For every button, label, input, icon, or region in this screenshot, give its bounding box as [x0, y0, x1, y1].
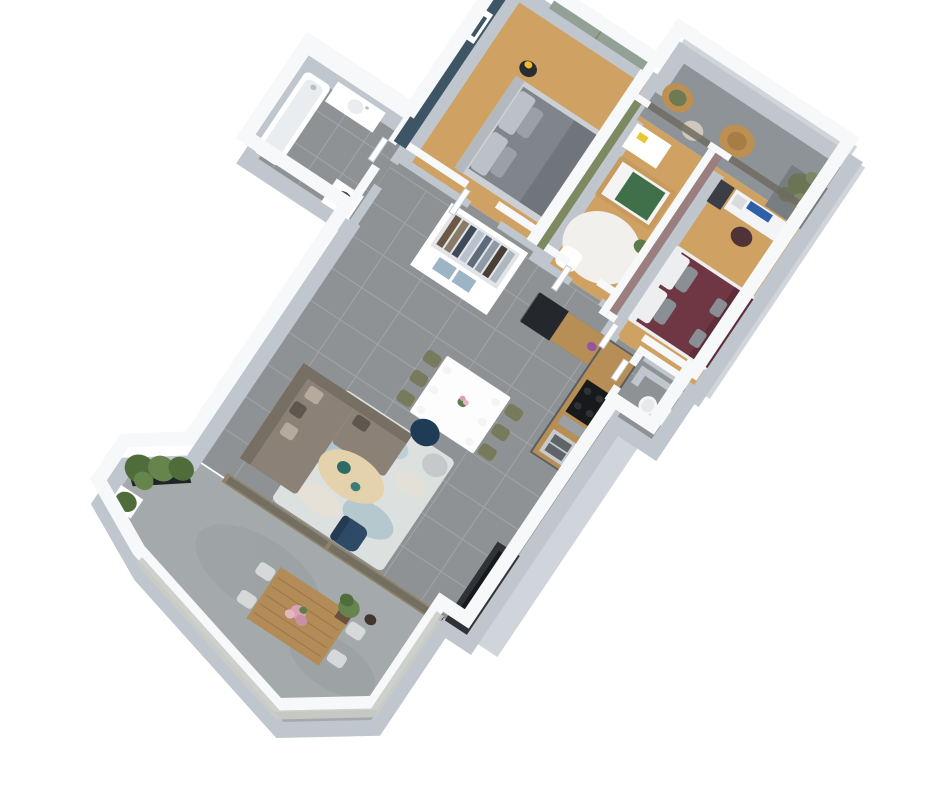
floor-plan-render	[0, 0, 941, 800]
floor-plan-stage	[0, 0, 941, 800]
